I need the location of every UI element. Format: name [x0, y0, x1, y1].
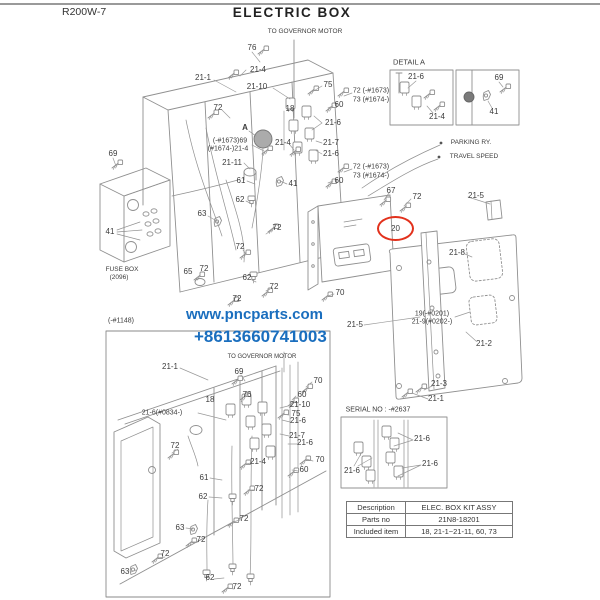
part-label: 62	[236, 196, 245, 204]
part-label: 21-9(#0202-)	[412, 319, 452, 326]
part-label: 21-5	[468, 192, 484, 200]
part-label: 41	[490, 108, 499, 116]
part-label: 72	[273, 224, 282, 232]
table-row: Included item 18, 21-1~21-11, 60, 73	[347, 526, 513, 538]
part-label: 76	[248, 44, 257, 52]
part-label: 72 (-#1673)	[353, 88, 389, 95]
part-label: PARKING RY.	[451, 140, 491, 147]
part-label: 72	[413, 193, 422, 201]
part-label: 61	[200, 474, 209, 482]
part-label: (#1674-)21-4	[208, 146, 248, 153]
part-label: 67	[387, 187, 396, 195]
part-label: 21-5	[347, 321, 363, 329]
part-label: 72	[270, 283, 279, 291]
table-cell-value: ELEC. BOX KIT ASSY	[406, 502, 513, 514]
part-label: 21-4	[275, 139, 291, 147]
part-label: 19(-#0201)	[415, 311, 449, 318]
part-label: 72	[197, 536, 206, 544]
part-label: 21-2	[476, 340, 492, 348]
part-label: 21-11	[222, 159, 242, 167]
part-label: 21-6	[325, 119, 341, 127]
table-cell-value: 18, 21-1~21-11, 60, 73	[406, 526, 513, 538]
part-label: TO GOVERNOR MOTOR	[268, 29, 343, 36]
part-label: 62	[199, 493, 208, 501]
part-label: 21-8	[449, 249, 465, 257]
table-cell-label: Parts no	[347, 514, 406, 526]
part-label: 21-6(#0834-)	[142, 410, 182, 417]
part-label: 73 (#1674-)	[353, 173, 389, 180]
part-label: FUSE BOX	[106, 267, 139, 274]
part-label: 69	[235, 368, 244, 376]
watermark-phone: +8613660741003	[194, 327, 327, 347]
part-label: 21-6	[422, 460, 438, 468]
part-label: 63	[121, 568, 130, 576]
part-label: 60	[335, 101, 344, 109]
part-label: 75	[324, 81, 333, 89]
part-label: 62	[206, 574, 215, 582]
part-label: 21-1	[162, 363, 178, 371]
part-label: 69	[109, 150, 118, 158]
part-label: 21-6	[297, 439, 313, 447]
part-label: 76	[243, 391, 252, 399]
part-label: (-#1148)	[108, 318, 134, 325]
watermark-url: www.pncparts.com	[186, 306, 323, 323]
part-label: 72	[236, 243, 245, 251]
part-label: 70	[336, 289, 345, 297]
part-label: 72	[214, 104, 223, 112]
part-label: 62	[243, 274, 252, 282]
part-label: 18	[286, 105, 295, 113]
table-row: Description ELEC. BOX KIT ASSY	[347, 502, 513, 514]
part-label: 61	[237, 177, 246, 185]
part-label: 18	[206, 396, 215, 404]
part-label: 21-1	[428, 395, 444, 403]
part-label: (-#1673)69	[213, 138, 247, 145]
highlighted-item-20[interactable]: 20	[377, 216, 414, 241]
part-label: 21-4	[250, 66, 266, 74]
parts-catalog-page: R200W-7 ELECTRIC BOX	[0, 0, 600, 600]
part-label: 41	[106, 228, 115, 236]
part-label: 21-1	[195, 74, 211, 82]
part-label: 63	[176, 524, 185, 532]
part-label: 72 (-#1673)	[353, 164, 389, 171]
part-label: 21-4	[429, 113, 445, 121]
part-label: 60	[335, 177, 344, 185]
table-row: Parts no 21N8-18201	[347, 514, 513, 526]
part-label: TO GOVERNOR MOTOR	[228, 354, 297, 360]
part-label: 72	[233, 295, 242, 303]
part-label: 21-10	[290, 401, 310, 409]
part-label: 21-3	[431, 380, 447, 388]
part-label: 21-6	[323, 150, 339, 158]
part-label: (2096)	[110, 275, 129, 282]
part-label: 63	[198, 210, 207, 218]
highlight-label: 20	[391, 224, 400, 233]
part-label: 41	[289, 180, 298, 188]
part-label: 21-7	[323, 139, 339, 147]
part-label: SERIAL NO : -#2637	[346, 407, 411, 414]
part-label: 72	[171, 442, 180, 450]
part-label: 73 (#1674-)	[353, 97, 389, 104]
part-label: 60	[298, 391, 307, 399]
part-label: 72	[161, 550, 170, 558]
part-label: A	[242, 124, 248, 132]
part-label: 69	[495, 74, 504, 82]
table-cell-label: Description	[347, 502, 406, 514]
part-label: 72	[233, 583, 242, 591]
part-label: 70	[316, 456, 325, 464]
table-cell-value: 21N8-18201	[406, 514, 513, 526]
part-label: TRAVEL SPEED	[450, 154, 498, 161]
part-label: DETAIL A	[393, 58, 425, 66]
table-cell-label: Included item	[347, 526, 406, 538]
part-label: 65	[184, 268, 193, 276]
part-label: 72	[255, 485, 264, 493]
part-label: 21-6	[408, 73, 424, 81]
part-label: 21-6	[414, 435, 430, 443]
part-label: 21-6	[290, 417, 306, 425]
part-label: 21-10	[247, 83, 267, 91]
parts-info-table: Description ELEC. BOX KIT ASSY Parts no …	[346, 501, 513, 538]
part-label: 21-4	[250, 458, 266, 466]
part-label: 21-6	[344, 467, 360, 475]
part-label: 72	[200, 265, 209, 273]
part-label: 70	[314, 377, 323, 385]
part-label: 72	[240, 515, 249, 523]
part-label: 60	[300, 466, 309, 474]
